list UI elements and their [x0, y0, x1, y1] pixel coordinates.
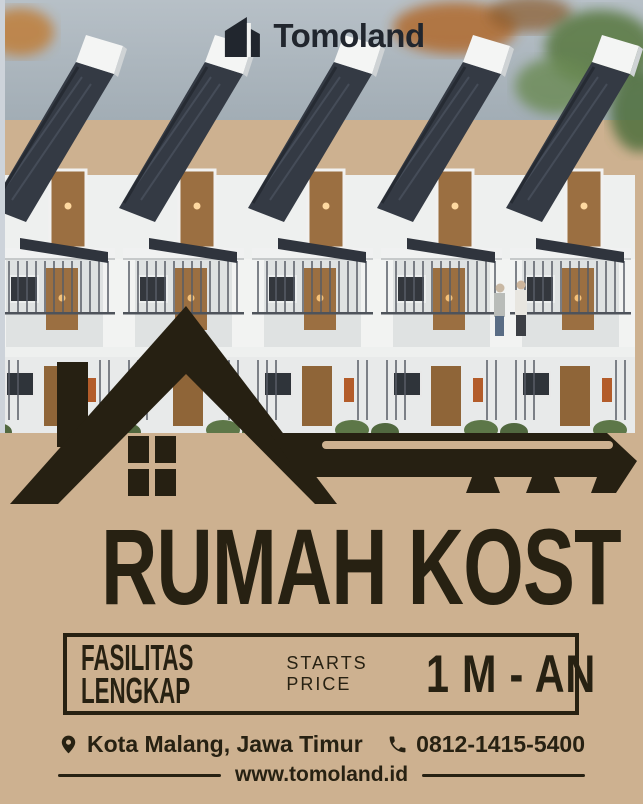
- rule-right: [422, 774, 585, 777]
- map-pin-icon: [58, 734, 79, 755]
- contact-row: Kota Malang, Jawa Timur 0812-1415-5400: [58, 731, 585, 758]
- rule-left: [58, 774, 221, 777]
- website-row: www.tomoland.id: [58, 763, 585, 787]
- property-flyer: Tomoland RUMAH KOST FA: [0, 0, 643, 804]
- feature-line-2: LENGKAP: [81, 674, 190, 707]
- website-url[interactable]: www.tomoland.id: [235, 763, 408, 787]
- page-title: RUMAH KOST: [0, 513, 643, 621]
- house-window-icon: [128, 436, 176, 496]
- price-value: 1 M - AN: [378, 644, 596, 705]
- price-label: STARTS PRICE: [286, 653, 367, 695]
- building-mark-icon: [218, 13, 264, 59]
- phone-item[interactable]: 0812-1415-5400: [387, 731, 585, 758]
- feature-text: FASILITAS LENGKAP: [81, 641, 262, 708]
- brand-logo: Tomoland: [218, 13, 424, 59]
- feature-line-1: FASILITAS: [81, 641, 193, 674]
- location-item: Kota Malang, Jawa Timur: [58, 731, 363, 758]
- brand-name: Tomoland: [273, 17, 424, 55]
- location-text: Kota Malang, Jawa Timur: [87, 731, 363, 758]
- house-key-silhouette: [0, 300, 643, 510]
- feature-price-box: FASILITAS LENGKAP STARTS PRICE 1 M - AN: [63, 633, 579, 715]
- phone-number[interactable]: 0812-1415-5400: [416, 731, 585, 758]
- phone-icon: [387, 734, 408, 755]
